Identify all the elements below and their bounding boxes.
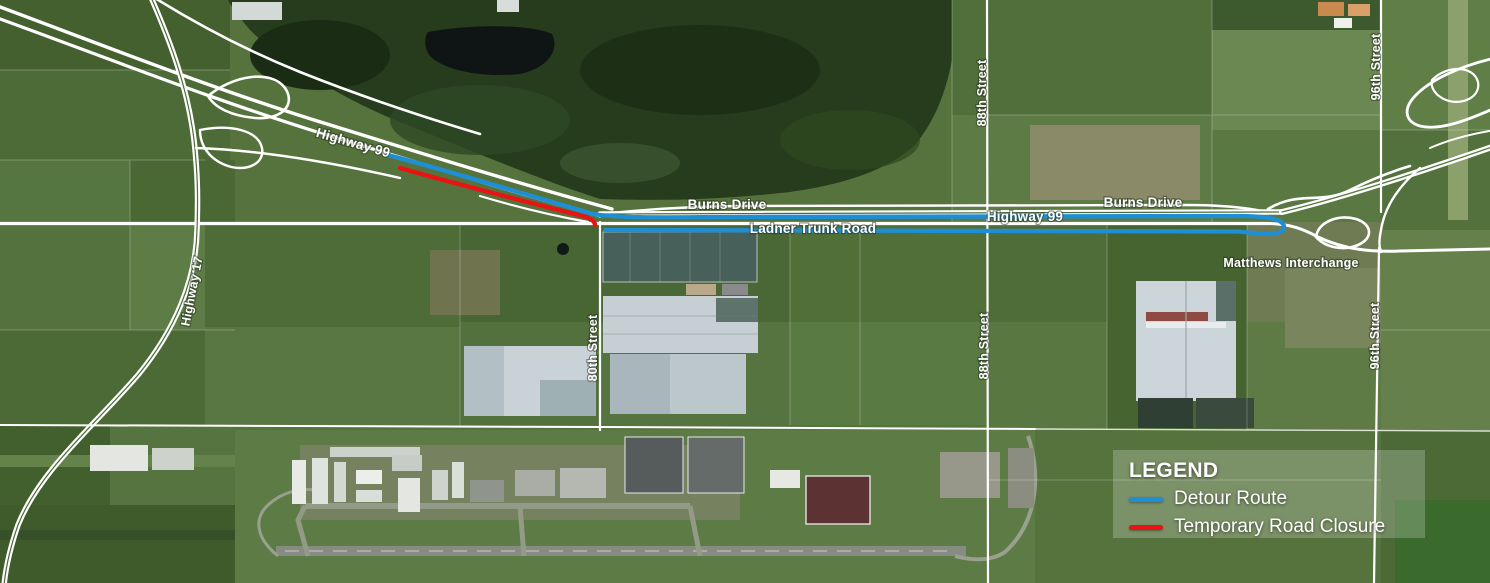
glass-greenhouse [603, 232, 757, 282]
legend-label-closure: Temporary Road Closure [1174, 516, 1385, 538]
maroon-building [806, 476, 870, 524]
label-highway99-west: Highway 99 [315, 125, 392, 160]
legend-label-detour: Detour Route [1174, 488, 1287, 510]
warehouse [625, 437, 683, 493]
label-96th-street-south: 96th Street [1368, 302, 1382, 369]
label-88th-street-north: 88th Street [975, 59, 989, 126]
legend: LEGEND Detour Route Temporary Road Closu… [1113, 450, 1425, 538]
label-matthews-interchange: Matthews Interchange [1223, 256, 1358, 270]
legend-item-closure: Temporary Road Closure [1129, 516, 1409, 538]
label-96th-street-north: 96th Street [1369, 33, 1383, 100]
label-ladner-trunk-road: Ladner Trunk Road [750, 221, 876, 236]
warehouse [688, 437, 744, 493]
label-88th-street-south: 88th Street [977, 312, 991, 379]
label-burns-drive-east: Burns Drive [1104, 195, 1183, 210]
label-80th-street: 80th Street [586, 314, 600, 381]
legend-title: LEGEND [1129, 459, 1409, 483]
road-closure-swatch [1129, 525, 1163, 530]
label-highway99-east: Highway 99 [987, 209, 1063, 224]
legend-item-detour: Detour Route [1129, 488, 1409, 510]
detour-route-swatch [1129, 497, 1163, 502]
taxiway [305, 503, 690, 509]
detour-map: Highway 99 Burns Drive Ladner Trunk Road… [0, 0, 1490, 583]
label-burns-drive-west: Burns Drive [688, 197, 767, 212]
